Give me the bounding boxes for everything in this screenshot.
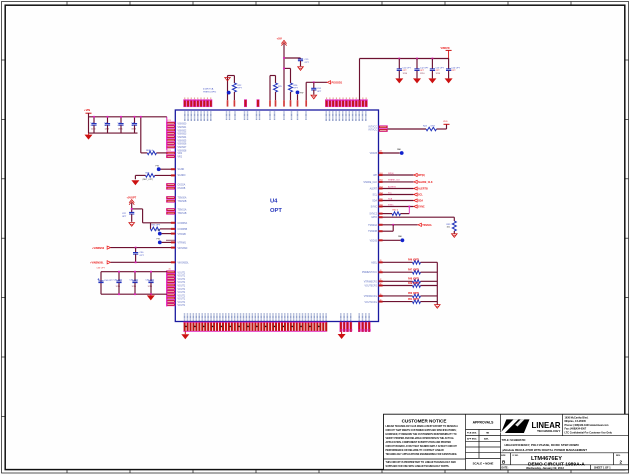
svg-text:VSNS04: VSNS04 [178,137,188,139]
svg-text:VR2: VR2 [178,153,183,155]
svg-text:1630 McCarthy Blvd.: 1630 McCarthy Blvd. [565,417,589,420]
svg-text:+VIN: +VIN [84,108,90,112]
svg-text:+VINSNS0: +VINSNS0 [92,247,105,250]
svg-text:ALERT: ALERT [370,188,378,191]
svg-text:OSC0B: OSC0B [178,188,186,190]
svg-text:VTRIM0: VTRIM0 [178,234,187,236]
svg-text:VINSNS0L: VINSNS0L [178,262,190,264]
svg-text:VOUT1: VOUT1 [178,285,186,287]
svg-text:VOUT1: VOUT1 [178,292,186,294]
svg-text:VERIFY PROPER AND RELIABLE OPE: VERIFY PROPER AND RELIABLE OPERATION IN … [386,437,455,440]
svg-text:C34 OPT: C34 OPT [104,280,113,282]
svg-text:C36 OPT: C36 OPT [130,279,139,281]
svg-text:SHEET 1 OF 1: SHEET 1 OF 1 [594,467,611,470]
svg-text:VOUT1CFG: VOUT1CFG [364,302,377,304]
svg-text:U4: U4 [270,199,278,205]
svg-text:APPROVALS: APPROVALS [473,421,495,425]
svg-text:R49 (OPT): R49 (OPT) [408,282,419,285]
svg-text:R33 OPT: R33 OPT [152,225,161,227]
svg-text:ASEL: ASEL [371,261,378,264]
svg-text:R50 (OPT): R50 (OPT) [408,293,419,295]
svg-text:OPT: OPT [104,125,109,127]
svg-text:COMP0B: COMP0B [178,229,188,231]
svg-text:(NET_OPT): (NET_OPT) [143,179,154,181]
svg-text:2: 2 [620,460,623,465]
svg-text:RFB0 0: RFB0 0 [146,150,154,152]
svg-text:SGND: SGND [178,169,185,171]
svg-text:VOUT1: VOUT1 [178,302,186,304]
svg-text:OPT: OPT [270,208,282,214]
svg-text:+5V: +5V [277,36,282,40]
svg-text:OPT: OPT [118,125,123,127]
svg-text:VSNS06: VSNS06 [178,144,188,146]
svg-text:DATE:: DATE: [502,467,509,470]
svg-text:PW: PW [156,165,159,167]
svg-text:TITLE: SCHEMATIC: TITLE: SCHEMATIC [502,438,526,442]
svg-text:VSNS08: VSNS08 [178,150,188,152]
svg-text:VINSNS0: VINSNS0 [178,248,189,250]
svg-text:SUPPLIED FOR USE WITH LINEAR T: SUPPLIED FOR USE WITH LINEAR TECHNOLOGY … [386,465,450,468]
svg-text:PW: PW [157,230,160,232]
svg-text:TECHNOLOGY APPLICATIONS ENGINE: TECHNOLOGY APPLICATIONS ENGINEERING FOR … [386,453,458,456]
svg-text:VOUT1: VOUT1 [178,295,186,297]
svg-text:THIS CIRCUIT IS PROPRIETARY TO: THIS CIRCUIT IS PROPRIETARY TO LINEAR TE… [386,461,457,464]
svg-text:WP: WP [373,175,377,177]
svg-text:VOUT1: VOUT1 [178,276,186,278]
svg-text:PCB DES.: PCB DES. [467,433,477,435]
svg-text:OPT: OPT [91,125,96,127]
svg-text:VSNS05: VSNS05 [178,140,188,142]
svg-text:AWL: AWL [484,438,489,441]
svg-text:VSNS01: VSNS01 [178,127,188,129]
svg-text:VOUT1: VOUT1 [178,305,186,307]
svg-text:TSNS0A: TSNS0A [422,224,432,227]
svg-text:TSNS0A: TSNS0A [178,197,187,200]
svg-text:TSNS0A: TSNS0A [368,224,377,227]
svg-text:SYNC2: SYNC2 [369,214,377,216]
svg-text:COMP0A: COMP0A [178,222,188,225]
svg-text:PW: PW [300,92,303,94]
svg-text:CIRCUIT BOARD LAYOUT MAY SIGNI: CIRCUIT BOARD LAYOUT MAY SIGNIFICANTLY A… [386,445,458,448]
svg-text:SHARE_CLK: SHARE_CLK [418,181,433,184]
svg-text:SDA: SDA [418,200,423,203]
svg-text:INTVCC: INTVCC [368,130,377,132]
svg-text:HOWEVER, IT REMAINS THE CUSTOM: HOWEVER, IT REMAINS THE CUSTOMER'S RESPO… [386,433,457,436]
svg-text:VTRIM0CFG: VTRIM0CFG [364,281,377,283]
svg-text:PW: PW [157,239,160,241]
svg-text:INTVCC: INTVCC [368,126,377,128]
svg-text:VDD25: VDD25 [370,153,378,155]
svg-text:OPT: OPT [131,125,136,127]
svg-text:VOUT1: VOUT1 [178,272,186,274]
svg-text:PAD: PAD [397,148,402,151]
svg-text:VSNS00: VSNS00 [178,124,188,126]
svg-text:VTRIM1: VTRIM1 [178,243,187,245]
svg-text:APPLICATION. COMPONENT SUBSTIT: APPLICATION. COMPONENT SUBSTITUTION AND … [386,441,452,444]
svg-text:PERFORMANCE OR RELIABILITY. CO: PERFORMANCE OR RELIABILITY. CONTACT LINE… [386,449,444,452]
svg-text:SHARE_CLK: SHARE_CLK [363,181,377,184]
svg-text:41: 41 [169,269,171,271]
svg-text:TSNS1A: TSNS1A [178,209,187,212]
svg-text:TSNS1B: TSNS1B [178,213,187,215]
svg-text:C35 OPT: C35 OPT [114,279,123,281]
svg-text:SDA: SDA [372,200,377,203]
svg-text:VDD33: VDD33 [370,240,378,242]
svg-text:LTM4676EY: LTM4676EY [531,456,562,462]
svg-text:SYNC: SYNC [371,207,378,209]
svg-text:VDD: VDD [443,121,448,123]
svg-text:TSNS0B: TSNS0B [368,231,377,233]
svg-text:ALERTB: ALERTB [388,185,396,188]
svg-text:REV.: REV. [616,455,621,457]
svg-text:R32 0: R32 0 [393,210,399,212]
svg-text:SGND0: SGND0 [178,175,187,177]
svg-text:OPT: OPT [431,126,436,128]
svg-text:SIZE: SIZE [501,455,506,457]
svg-text:PGOOD1: PGOOD1 [332,82,343,85]
svg-text:OPT: OPT [140,255,145,257]
svg-text:OPT: OPT [122,216,127,218]
svg-text:PAD: PAD [398,235,403,238]
svg-text:VOUT1: VOUT1 [178,289,186,291]
svg-text:HIGH EFFICIENCY, POLY-PHASE, D: HIGH EFFICIENCY, POLY-PHASE, DC/DC STEP-… [505,443,579,447]
svg-text:TRSTD (OPT): TRSTD (OPT) [203,91,216,93]
svg-text:VOUT1: VOUT1 [178,279,186,281]
svg-text:VOUT1: VOUT1 [178,282,186,284]
svg-text:SHARE_CLK: SHARE_CLK [388,179,401,182]
svg-text:CUSTOMER NOTICE: CUSTOMER NOTICE [402,418,447,423]
svg-text:TSNS0B: TSNS0B [178,201,187,203]
svg-text:WP(0): WP(0) [388,173,394,175]
svg-text:VIN5VD: VIN5VD [441,47,450,50]
svg-text:SCALE = NONE: SCALE = NONE [473,461,494,465]
svg-text:CIRCUIT THAT MEETS CUSTOMER-SU: CIRCUIT THAT MEETS CUSTOMER-SUPPLIED SPE… [386,429,457,432]
svg-text:Phone: (408)432-1900 www.line: Phone: (408)432-1900 www.linear.com [565,424,610,427]
svg-text:ALERTB: ALERTB [418,188,428,191]
svg-text:OPT: OPT [317,91,322,93]
svg-text:SYNC: SYNC [418,206,425,209]
svg-text:TECHNOLOGY: TECHNOLOGY [537,429,561,433]
svg-text:+VINSNS0L: +VINSNS0L [90,262,104,265]
svg-text:Fax: (408)434-0507: Fax: (408)434-0507 [565,427,587,430]
svg-text:R51 (OPT): R51 (OPT) [408,299,419,301]
svg-text:SCL: SCL [418,194,423,197]
svg-text:0.05R TCA: 0.05R TCA [203,87,214,90]
svg-text:SDA: SDA [388,197,393,200]
svg-text:OSC0A: OSC0A [178,184,186,187]
svg-text:SYNC: SYNC [388,204,394,206]
svg-text:R47 (OPT): R47 (OPT) [408,269,419,272]
svg-text:µModule REGULATOR WITH DIGITAL: µModule REGULATOR WITH DIGITAL POWER MAN… [503,448,588,452]
svg-text:APP ENG.: APP ENG. [467,438,477,441]
svg-text:PWMENTVCC: PWMENTVCC [362,272,377,274]
svg-text:VOUT0CFG: VOUT0CFG [364,286,377,288]
svg-text:OPT: OPT [238,87,243,89]
svg-text:LINEAR TECHNOLOGY HAS MADE A B: LINEAR TECHNOLOGY HAS MADE A BEST EFFORT… [386,425,459,428]
svg-text:R48 (OPT): R48 (OPT) [408,278,419,281]
svg-text:C37 OPT: C37 OPT [146,279,155,281]
svg-text:+5VOPT: +5VOPT [127,197,137,200]
svg-text:VSNS03: VSNS03 [178,134,188,136]
svg-text:OPT: OPT [294,87,299,89]
svg-text:VSNS02: VSNS02 [178,130,188,132]
svg-text:WP(0): WP(0) [418,174,425,177]
svg-text:Milpitas, CA 95035: Milpitas, CA 95035 [565,420,587,423]
svg-text:VTRIM1CFG: VTRIM1CFG [364,296,377,298]
svg-text:Wednesday, January 02, 2013: Wednesday, January 02, 2013 [526,466,564,470]
svg-text:VOUT1: VOUT1 [178,299,186,301]
svg-text:SCL: SCL [373,195,378,197]
svg-text:HB: HB [486,433,490,435]
svg-text:GPIO: GPIO [371,217,377,219]
svg-text:VR2: VR2 [178,156,183,158]
svg-text:LTC Confidential-For Customer: LTC Confidential-For Customer Use Only [565,432,613,435]
svg-text:IC NO.: IC NO. [513,455,520,457]
svg-text:R46 (OPT): R46 (OPT) [408,259,419,262]
svg-text:OPT: OPT [305,62,310,64]
svg-text:VSNS07: VSNS07 [178,147,188,149]
svg-text:C33 OPT: C33 OPT [97,267,106,269]
